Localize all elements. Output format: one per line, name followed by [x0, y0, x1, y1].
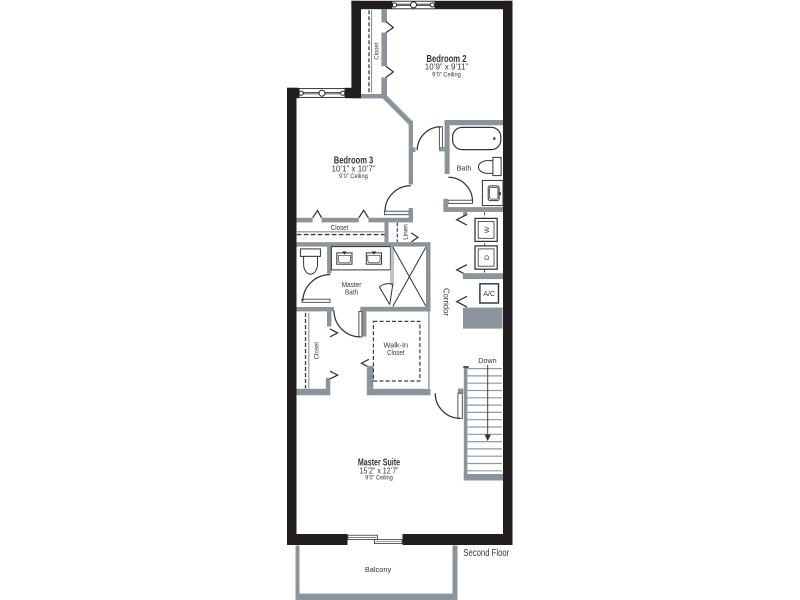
svg-text:10’9” x 9’11”: 10’9” x 9’11” [425, 63, 469, 72]
svg-text:Closet: Closet [313, 342, 320, 360]
svg-text:A/C: A/C [483, 289, 495, 298]
svg-text:Closet: Closet [331, 223, 349, 232]
svg-text:Down: Down [478, 356, 496, 365]
svg-text:9’0” Ceiling: 9’0” Ceiling [432, 71, 461, 78]
svg-text:10’1” x 10’7”: 10’1” x 10’7” [331, 164, 375, 173]
svg-text:Closet: Closet [387, 348, 404, 357]
svg-text:D: D [484, 255, 491, 260]
svg-text:Balcony: Balcony [365, 565, 392, 574]
svg-text:9’0” Ceiling: 9’0” Ceiling [339, 173, 368, 180]
svg-text:Bath: Bath [345, 288, 358, 297]
svg-text:Second Floor: Second Floor [463, 548, 509, 559]
svg-text:W: W [484, 226, 491, 233]
svg-text:Closet: Closet [374, 43, 381, 60]
svg-text:Corridor: Corridor [442, 288, 451, 316]
svg-text:Bath: Bath [457, 164, 472, 173]
svg-text:Linen: Linen [403, 224, 410, 240]
svg-text:9’0” Ceiling: 9’0” Ceiling [365, 475, 393, 482]
